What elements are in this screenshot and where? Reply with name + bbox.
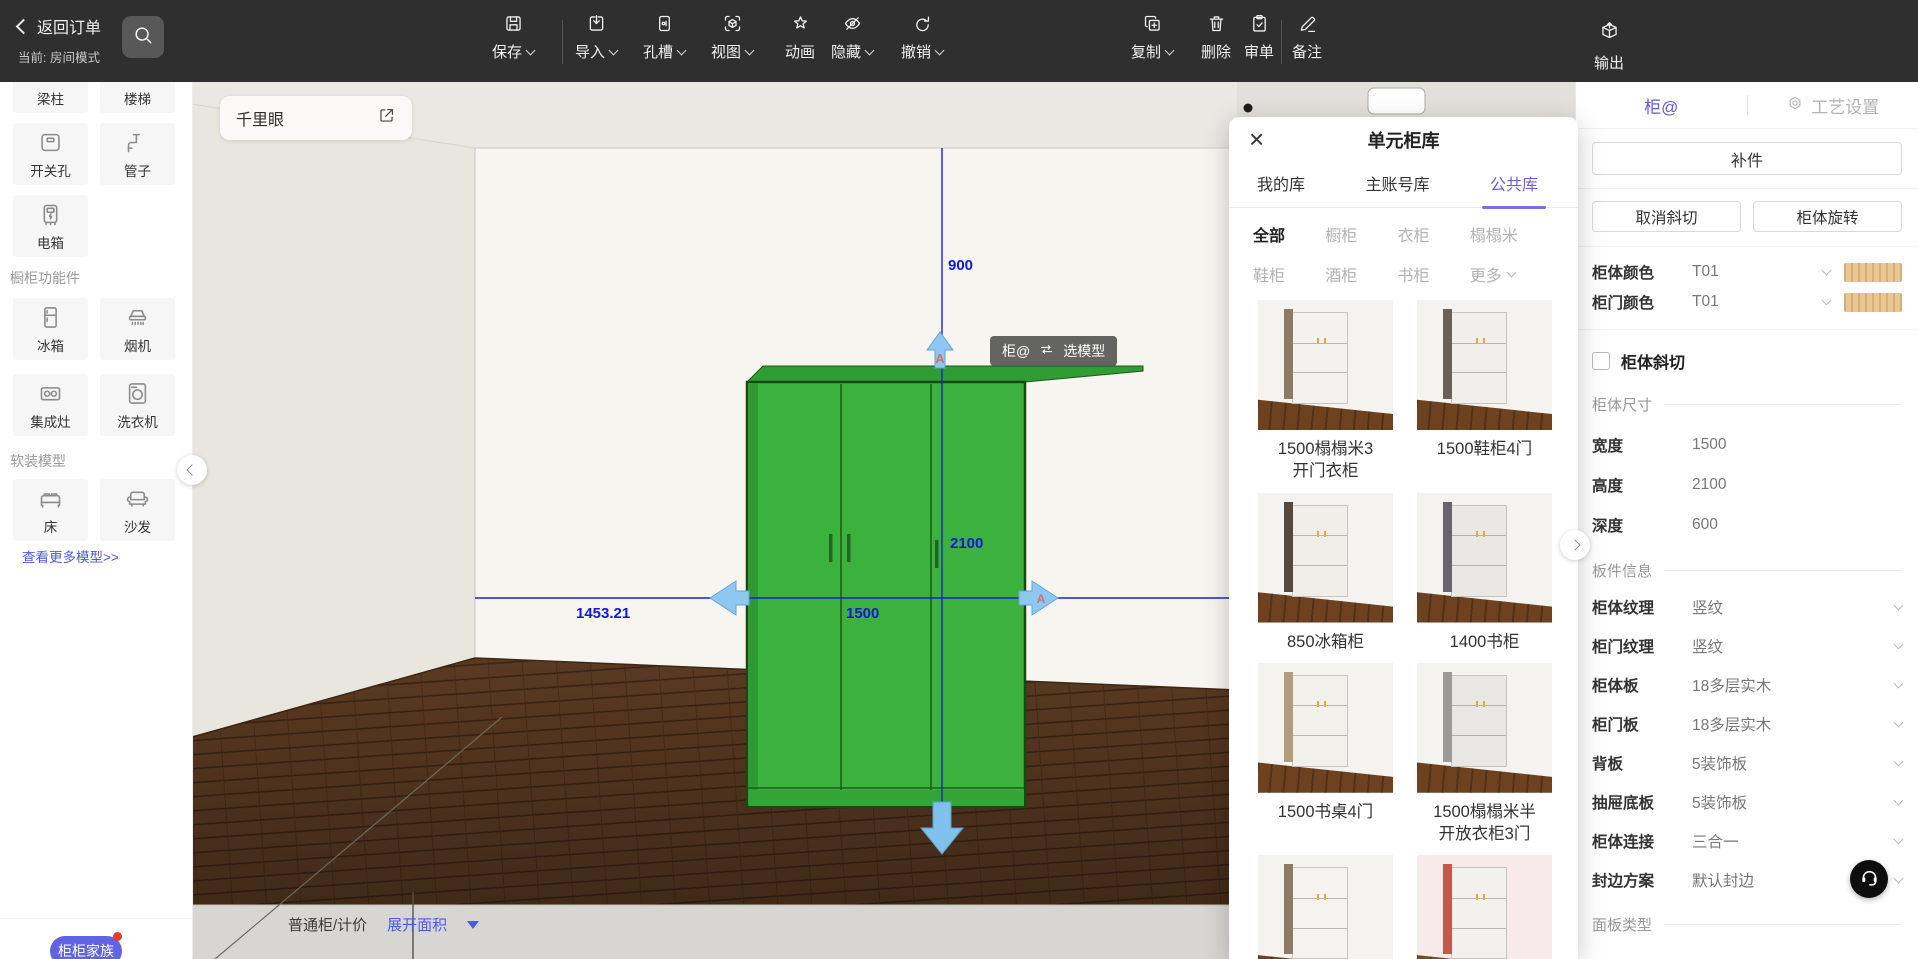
sidebar-item-bed[interactable]: 床 [13,479,88,541]
sidebar-item-label: 烟机 [124,335,151,355]
chevron-down-icon [526,45,536,55]
board-select-row[interactable]: 柜门纹理竖纹 [1592,626,1902,665]
product-thumbnail [1417,855,1552,959]
product-name: 1500榻榻米半开放衣柜3门 [1417,801,1552,846]
swap-icon [1038,341,1055,361]
size-value[interactable]: 1500 [1692,436,1726,454]
electric-box-icon [37,201,64,228]
chevron-down-icon [1822,266,1832,276]
stove-icon [37,380,64,407]
toolbar-button-import[interactable]: 导入 [561,13,631,62]
checkbox-icon[interactable] [1592,352,1610,370]
rotate-cabinet-button[interactable]: 柜体旋转 [1753,201,1902,232]
back-to-order-label: 返回订单 [37,14,101,38]
hood-icon [124,304,151,331]
qianliyan-panel[interactable]: 千里眼 [220,96,412,140]
chevron-down-icon [1165,45,1175,55]
chevron-down-icon [1894,717,1904,727]
chevron-down-icon [1822,296,1832,306]
toolbar-button-undo[interactable]: 撤销 [887,13,957,62]
product-thumbnail [1258,493,1393,623]
toolbar-button-label: 动画 [785,41,815,62]
gear-icon [1786,94,1804,117]
sidebar-item-label: 洗衣机 [117,411,158,431]
note-icon [1297,13,1318,34]
board-select-row[interactable]: 柜体板18多层实木 [1592,665,1902,704]
pricing-type-label: 普通柜/计价 [288,914,367,935]
toolbar-button-label: 输出 [1594,52,1624,73]
product-card[interactable] [1258,855,1393,959]
sidebar-item-label: 楼梯 [124,88,151,108]
sidebar-collapse-handle[interactable] [177,455,207,485]
fridge-icon [37,304,64,331]
toolbar-button-note[interactable]: 备注 [1272,13,1342,62]
cabinet-bevel-checkbox-row[interactable]: 柜体斜切 [1576,330,1918,379]
chevron-down-icon [677,45,687,55]
sidebar-section-header: 软装模型 [10,451,66,471]
dim-label-1500[interactable]: 1500 [846,605,879,622]
sidebar-bottom: 柜柜家族 [0,918,192,959]
product-name: 1500书桌4门 [1258,801,1393,823]
qianliyan-title: 千里眼 [236,106,377,130]
chevron-down-icon [1894,795,1904,805]
sidebar-item-switch-hole[interactable]: 开关孔 [13,123,88,185]
section-board-info: 板件信息 [1576,545,1918,585]
dim-label-900[interactable]: 900 [948,257,973,274]
product-card[interactable]: 1400书柜 [1417,493,1552,653]
board-select-row[interactable]: 背板5装饰板 [1592,743,1902,782]
wood-swatch[interactable] [1844,263,1902,282]
panel-collapse-handle[interactable] [1560,530,1590,560]
switch-hole-icon [37,129,64,156]
ceiling-dot [1244,104,1253,113]
toolbar-button-label: 视图 [711,41,741,62]
beam-icon [37,82,64,84]
output-icon [1599,20,1620,41]
expand-area-link[interactable]: 展开面积 [387,914,447,935]
hide-icon [842,13,863,34]
product-name: 850冰箱柜 [1258,631,1393,653]
animation-icon [790,13,811,34]
toolbar-button-label: 审单 [1244,41,1274,62]
headset-icon [1859,866,1880,887]
sidebar-section-header: 橱柜功能件 [10,268,80,288]
bed-icon [37,485,64,512]
sidebar-item-label: 集成灶 [30,411,71,431]
save-icon [503,13,524,34]
back-to-order-button[interactable]: 返回订单 [18,14,101,38]
sidebar-item-label: 床 [44,516,58,536]
notification-dot [113,932,122,941]
room-left-wall [192,104,475,737]
search-button[interactable] [122,16,164,58]
hole-icon [654,13,675,34]
category-item[interactable]: 衣柜 [1397,222,1469,246]
toolbar-button-save[interactable]: 保存 [478,13,548,62]
review-icon [1249,13,1270,34]
toolbar-button-hole[interactable]: 孔槽 [629,13,699,62]
product-name: 1400书柜 [1417,631,1552,653]
category-item[interactable]: 更多 [1470,262,1560,286]
color-select-row[interactable]: 柜门颜色T01 [1592,287,1902,317]
product-card[interactable]: 850冰箱柜 [1258,493,1393,653]
share-icon [377,106,396,125]
size-input-row: 深度600 [1592,505,1902,545]
toolbar-button-hide[interactable]: 隐藏 [817,13,887,62]
sidebar-item-beam[interactable]: 梁柱 [13,82,88,113]
pipe-icon [124,129,151,156]
product-thumbnail [1258,855,1393,959]
dim-label-2100[interactable]: 2100 [950,535,983,552]
tooltip-left-label: 柜@ [1002,341,1030,361]
chevron-down-icon [1506,268,1516,278]
chevron-down-icon [1894,678,1904,688]
size-input-row: 高度2100 [1592,465,1902,505]
product-card[interactable] [1417,855,1552,959]
category-item[interactable]: 榻榻米 [1470,222,1560,246]
output-icon [1599,20,1620,45]
wood-swatch[interactable] [1844,293,1902,312]
section-cabinet-size: 柜体尺寸 [1576,379,1918,419]
cabinet-tooltip: 柜@ 选模型 [990,336,1117,366]
washer-icon [124,380,151,407]
chevron-right-icon [1569,539,1580,550]
product-card[interactable]: 1500榻榻米半开放衣柜3门 [1417,663,1552,846]
swap-icon [1038,341,1055,358]
chevron-down-icon [935,45,945,55]
product-name: 1500榻榻米3开门衣柜 [1258,438,1393,483]
copy-icon [1142,13,1163,34]
dim-label-1453[interactable]: 1453.21 [576,605,630,622]
library-tab-active[interactable]: 公共库 [1490,171,1538,199]
toolbar-button-view[interactable]: 视图 [697,13,767,62]
modal-title: 单元柜库 [1368,127,1440,153]
customer-service-button[interactable] [1850,860,1888,898]
share-icon[interactable] [377,106,396,130]
sidebar-item-label: 开关孔 [30,160,71,180]
toolbar-button-output[interactable]: 输出 [1574,13,1644,73]
sidebar-item-label: 冰箱 [37,335,64,355]
model-library-sidebar: 梁柱楼梯开关孔管子电箱橱柜功能件冰箱烟机集成灶洗衣机软装模型床沙发 查看更多模型… [0,82,193,959]
sidebar-item-pipe[interactable]: 管子 [100,123,175,185]
toolbar-button-label: 撤销 [901,41,931,62]
toolbar-button-label: 保存 [492,41,522,62]
arrow-letter-a: A [935,351,945,366]
board-select-row[interactable]: 柜体连接三合一 [1592,821,1902,860]
sidebar-item-electric-box[interactable]: 电箱 [13,195,88,257]
chevron-down-icon [1894,600,1904,610]
toolbar-button-label: 复制 [1131,41,1161,62]
chevron-down-icon [1894,756,1904,766]
sofa-icon [124,485,151,512]
sidebar-item-label: 梁柱 [37,88,64,108]
toolbar-button-label: 导入 [575,41,605,62]
chevron-down-icon [1894,834,1904,844]
product-card[interactable]: 1500鞋柜4门 [1417,300,1552,483]
product-thumbnail [1258,663,1393,793]
library-tab-item[interactable]: 主账号库 [1365,171,1429,199]
product-card[interactable]: 1500书桌4门 [1258,663,1393,846]
color-select-row[interactable]: 柜体颜色T01 [1592,257,1902,287]
unit-cabinet-library-modal: × 单元柜库 我的库主账号库公共库 全部橱柜衣柜榻榻米鞋柜酒柜书柜更多 1500… [1229,117,1578,959]
chevron-down-icon [865,45,875,55]
chevron-down-icon [745,45,755,55]
view-icon [722,13,743,34]
top-toolbar: 返回订单 当前: 房间模式 保存导入孔槽视图动画隐藏撤销复制删除审单备注 输出 [0,0,1918,82]
gear-icon [1786,94,1804,112]
product-thumbnail [1417,493,1552,623]
cabinet-property-panel: 柜@ 工艺设置 补件 取消斜切 柜体旋转 柜体颜色T01柜门颜色T01 柜体斜切… [1575,82,1918,959]
current-mode-label: 当前: 房间模式 [18,47,101,66]
modal-header: × 单元柜库 [1229,117,1578,163]
chevron-down-icon [1894,873,1904,883]
size-input-row: 宽度1500 [1592,425,1902,465]
sidebar-item-fridge[interactable]: 冰箱 [13,298,88,360]
chevron-down-icon [609,45,619,55]
toolbar-button-label: 孔槽 [643,41,673,62]
cabinet-bevel-label: 柜体斜切 [1621,349,1685,373]
sidebar-item-label: 沙发 [124,516,151,536]
sidebar-item-hood[interactable]: 烟机 [100,298,175,360]
sidebar-item-stairs[interactable]: 楼梯 [100,82,175,113]
sidebar-item-washer[interactable]: 洗衣机 [100,374,175,436]
sidebar-item-label: 管子 [124,160,151,180]
close-icon[interactable]: × [1249,125,1264,153]
size-value[interactable]: 2100 [1692,476,1726,494]
board-select-row[interactable]: 柜门板18多层实木 [1592,704,1902,743]
undo-icon [912,13,933,34]
arrow-letter-a: A [1037,592,1046,606]
sidebar-item-sofa[interactable]: 沙发 [100,479,175,541]
patch-part-button[interactable]: 补件 [1592,142,1902,175]
cancel-bevel-button[interactable]: 取消斜切 [1592,201,1741,232]
toolbar-button-label: 备注 [1292,41,1322,62]
chevron-left-icon [16,18,32,34]
toolbar-button-copy[interactable]: 复制 [1117,13,1187,62]
library-tab-item[interactable]: 我的库 [1257,171,1305,199]
scene-mini-button[interactable] [1368,88,1425,114]
search-icon [132,24,154,51]
section-panel-type: 面板类型 [1576,899,1918,939]
cabinet-family-button[interactable]: 柜柜家族 [50,936,122,959]
canvas-bottom-bar: 普通柜/计价 展开面积 [288,914,479,935]
category-item[interactable]: 鞋柜 [1253,262,1325,286]
product-thumbnail [1417,663,1552,793]
product-thumbnail [1417,300,1552,430]
sidebar-item-label: 电箱 [37,232,64,252]
more-models-link[interactable]: 查看更多模型>> [22,546,119,566]
chevron-left-icon [186,464,197,475]
headset-icon [1859,866,1880,892]
category-item[interactable]: 全部 [1253,222,1325,246]
board-select-row[interactable]: 柜体纹理竖纹 [1592,587,1902,626]
category-item[interactable]: 书柜 [1397,262,1469,286]
sidebar-item-stove[interactable]: 集成灶 [13,374,88,436]
board-select-row[interactable]: 抽屉底板5装饰板 [1592,782,1902,821]
tab-cabinet[interactable]: 柜@ [1576,93,1747,118]
size-value[interactable]: 600 [1692,516,1718,534]
tooltip-right-label: 选模型 [1063,341,1105,361]
product-card[interactable]: 1500榻榻米3开门衣柜 [1258,300,1393,483]
toolbar-button-label: 隐藏 [831,41,861,62]
stairs-icon [124,82,151,84]
chevron-down-icon [1894,639,1904,649]
import-icon [586,13,607,34]
caret-down-icon[interactable] [467,921,479,929]
search-icon [132,24,154,46]
category-item[interactable]: 酒柜 [1325,262,1397,286]
product-name: 1500鞋柜4门 [1417,438,1552,460]
category-item[interactable]: 橱柜 [1325,222,1397,246]
product-thumbnail [1258,300,1393,430]
tab-process-settings[interactable]: 工艺设置 [1748,93,1918,118]
tab-process-settings-label: 工艺设置 [1811,93,1879,118]
